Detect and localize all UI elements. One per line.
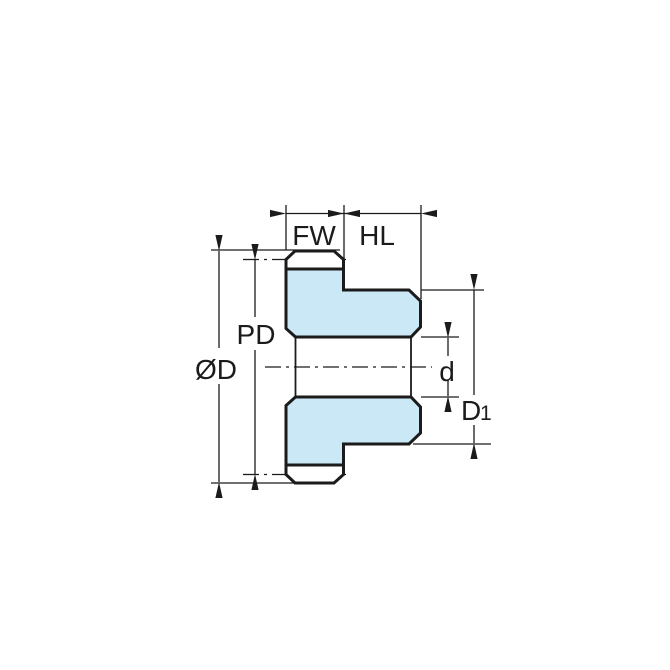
drawing-canvas: FW HL PD ØD d D 1 <box>0 0 670 670</box>
label-face-width: FW <box>292 220 336 251</box>
label-hub-diameter: D <box>461 395 481 426</box>
gear-body-upper-section <box>286 269 421 337</box>
label-bore-diameter: d <box>439 356 455 387</box>
label-hub-diameter-subscript: 1 <box>480 402 492 425</box>
tooth-band-bottom <box>286 465 344 483</box>
gear-body-lower-section <box>286 397 421 465</box>
gear-cross-section-drawing: FW HL PD ØD d D 1 <box>0 0 670 670</box>
label-hub-length: HL <box>359 220 395 251</box>
label-pitch-diameter: PD <box>237 319 276 350</box>
label-outside-diameter: ØD <box>195 354 237 385</box>
tooth-band-top <box>286 251 344 269</box>
